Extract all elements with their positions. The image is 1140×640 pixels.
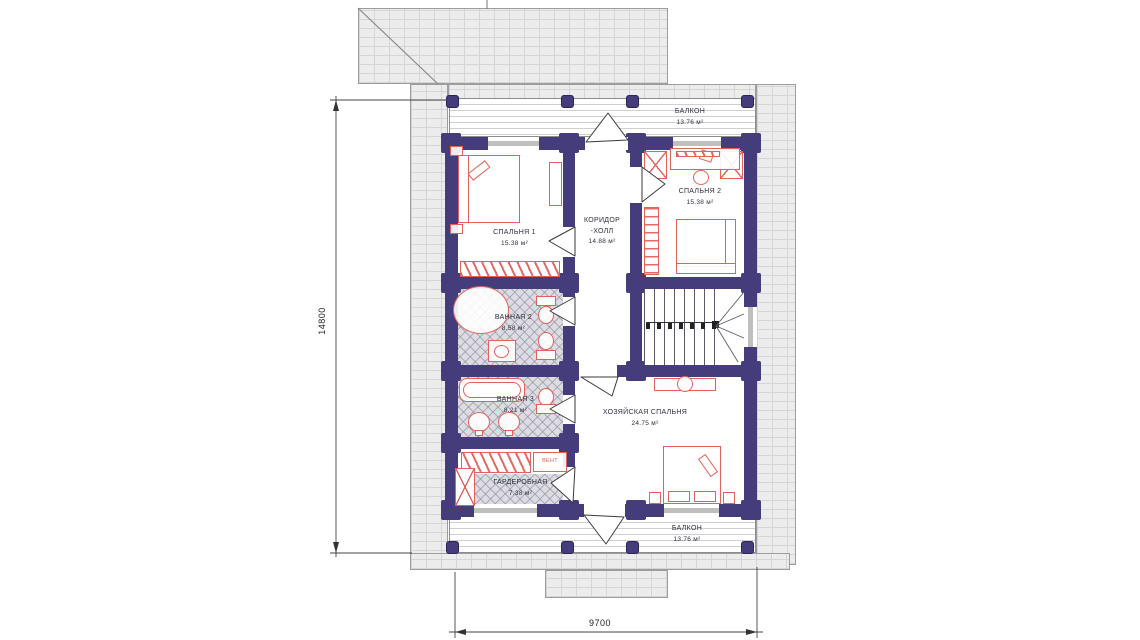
column-cross [741,273,761,293]
column-cross [559,361,579,381]
roof-area-top [358,8,668,84]
door-master-bedroom-icon [581,377,618,396]
pillow-icon [694,491,716,502]
balcony-column [446,541,459,554]
column-cross [626,273,646,293]
balcony-column [561,541,574,554]
room-area: 7.38 м² [468,489,573,499]
room-name: ХОЗЯЙСКАЯ СПАЛЬНЯ [570,408,720,419]
interior-wall-bath2-bath3 [445,365,575,377]
bidet-base-icon [536,350,556,360]
floor-plan-canvas: БАЛКОН 13.76 м² СПАЛЬНЯ 1 15.38 м² КОРИД… [0,0,1140,640]
room-area: 24.75 м² [570,419,720,429]
room-area: 13.76 м² [632,535,742,545]
nightstand-icon [723,492,735,504]
shelving-icon [644,207,659,275]
label-vent: ВЕНТ [533,458,567,464]
door-opening-balcony-bottom [584,504,625,517]
column-cross [741,133,761,153]
roof-area-bottom-strip [410,553,790,570]
nightstand-icon [649,492,661,504]
roof-area-right [756,84,796,565]
column-cross [441,433,461,453]
room-area: 15.38 м² [645,198,755,208]
label-bedroom2: СПАЛЬНЯ 2 15.38 м² [645,187,755,207]
bed-headboard-icon [458,155,469,223]
roof-area-left [410,84,448,570]
column-cross [626,133,646,153]
door-opening-bedroom2 [630,167,642,203]
room-area: 15.38 м² [457,239,572,249]
stairs-newel [712,321,719,328]
tv-icon [677,376,693,392]
balcony-column [741,541,754,554]
room-area: 14.88 м² [566,237,638,247]
column-cross [559,433,579,453]
interior-wall-bath3-wardrobe [445,437,575,449]
label-bedroom1: СПАЛЬНЯ 1 15.38 м² [457,228,572,248]
label-wardrobe: ГАРДЕРОБНАЯ 7.38 м² [468,478,573,498]
column-cross [559,133,579,153]
shelf-icon [549,162,562,206]
bed-headboard-icon [725,219,736,267]
room-name: БАЛКОН [632,524,742,535]
window-wardrobe [473,504,538,517]
balcony-column [561,95,574,108]
door-opening-balcony-top [585,137,628,150]
column-cross [626,500,646,520]
room-name2: -ХОЛЛ [566,227,638,238]
column-cross [559,500,579,520]
exterior-wall-left [445,137,458,517]
toilet-tank-icon [536,296,556,306]
room-area: 8.21 м² [463,406,568,416]
window-stairs [744,306,757,348]
sink-tap-icon [505,430,513,436]
window-master-bedroom [663,504,720,517]
chair-icon [693,170,709,185]
interior-wall-stairs-top [630,277,757,289]
room-name: ВАННАЯ 2 [461,313,566,324]
label-balcony-top: БАЛКОН 13.76 м² [635,107,745,127]
label-bathroom2: ВАННАЯ 2 8.58 м² [461,313,566,333]
column-cross [741,500,761,520]
cabinet-x-icon [644,151,667,179]
room-name: СПАЛЬНЯ 1 [457,228,572,239]
room-name: БАЛКОН [635,107,745,118]
label-master-bedroom: ХОЗЯЙСКАЯ СПАЛЬНЯ 24.75 м² [570,408,720,428]
column-cross [741,361,761,381]
pillow-icon [668,491,690,502]
radiator-icon [676,151,720,157]
stairs-rail [646,322,716,329]
label-bathroom3: ВАННАЯ 3 8.21 м² [463,395,568,415]
sink-icon [494,345,509,358]
bed-footboard-icon [676,263,736,274]
room-name: ВАННАЯ 3 [463,395,568,406]
column-cross [626,361,646,381]
room-area: 8.58 м² [461,324,566,334]
room-name: КОРИДОР [566,216,638,227]
nightstand-icon [450,146,463,156]
interior-wall-bedroom1-bath2 [445,277,575,289]
dimension-width: 9700 [560,618,640,628]
column-cross [559,273,579,293]
wardrobe-closet-icon [460,261,560,277]
bidet-icon [538,332,554,350]
balcony-column [446,95,459,108]
roof-area-bottom-patch [545,570,668,598]
dimension-height: 14800 [317,299,327,343]
column-cross [441,361,461,381]
label-balcony-bottom: БАЛКОН 13.76 м² [632,524,742,544]
column-cross [441,273,461,293]
room-name: ГАРДЕРОБНАЯ [468,478,573,489]
label-corridor: КОРИДОР -ХОЛЛ 14.88 м² [566,216,638,247]
stairs-winder-lines [716,292,744,362]
room-area: 13.76 м² [635,118,745,128]
room-name: СПАЛЬНЯ 2 [645,187,755,198]
window-bedroom1 [487,137,540,150]
sink-tap-icon [475,430,483,436]
